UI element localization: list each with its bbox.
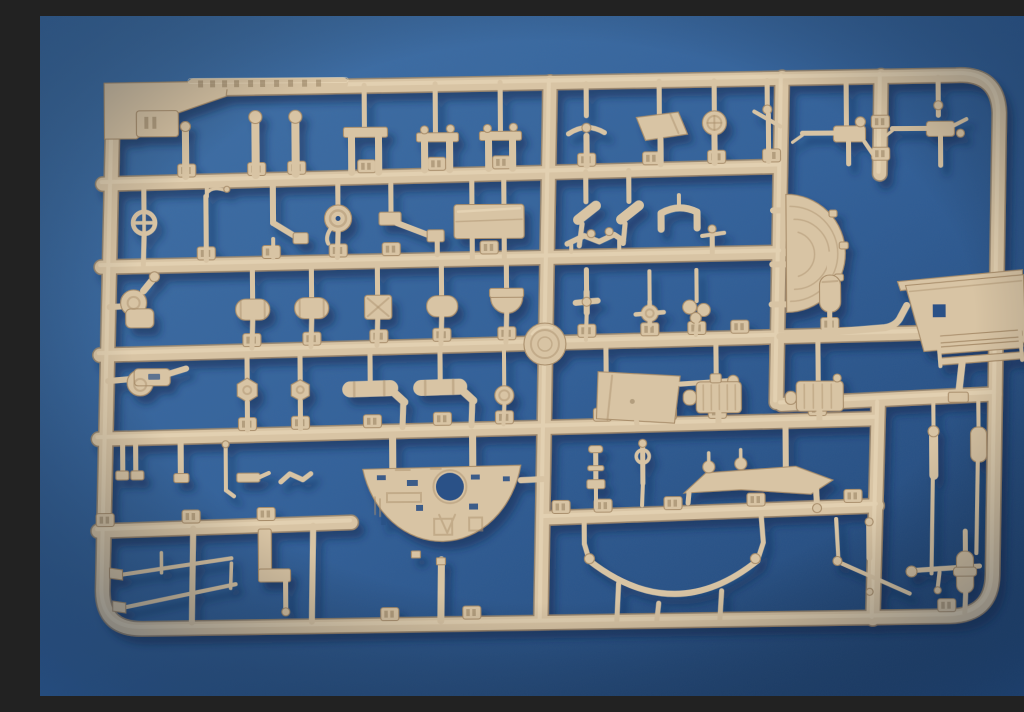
photo-model-kit-sprue (40, 16, 1024, 696)
photo-vignette (40, 16, 1024, 696)
